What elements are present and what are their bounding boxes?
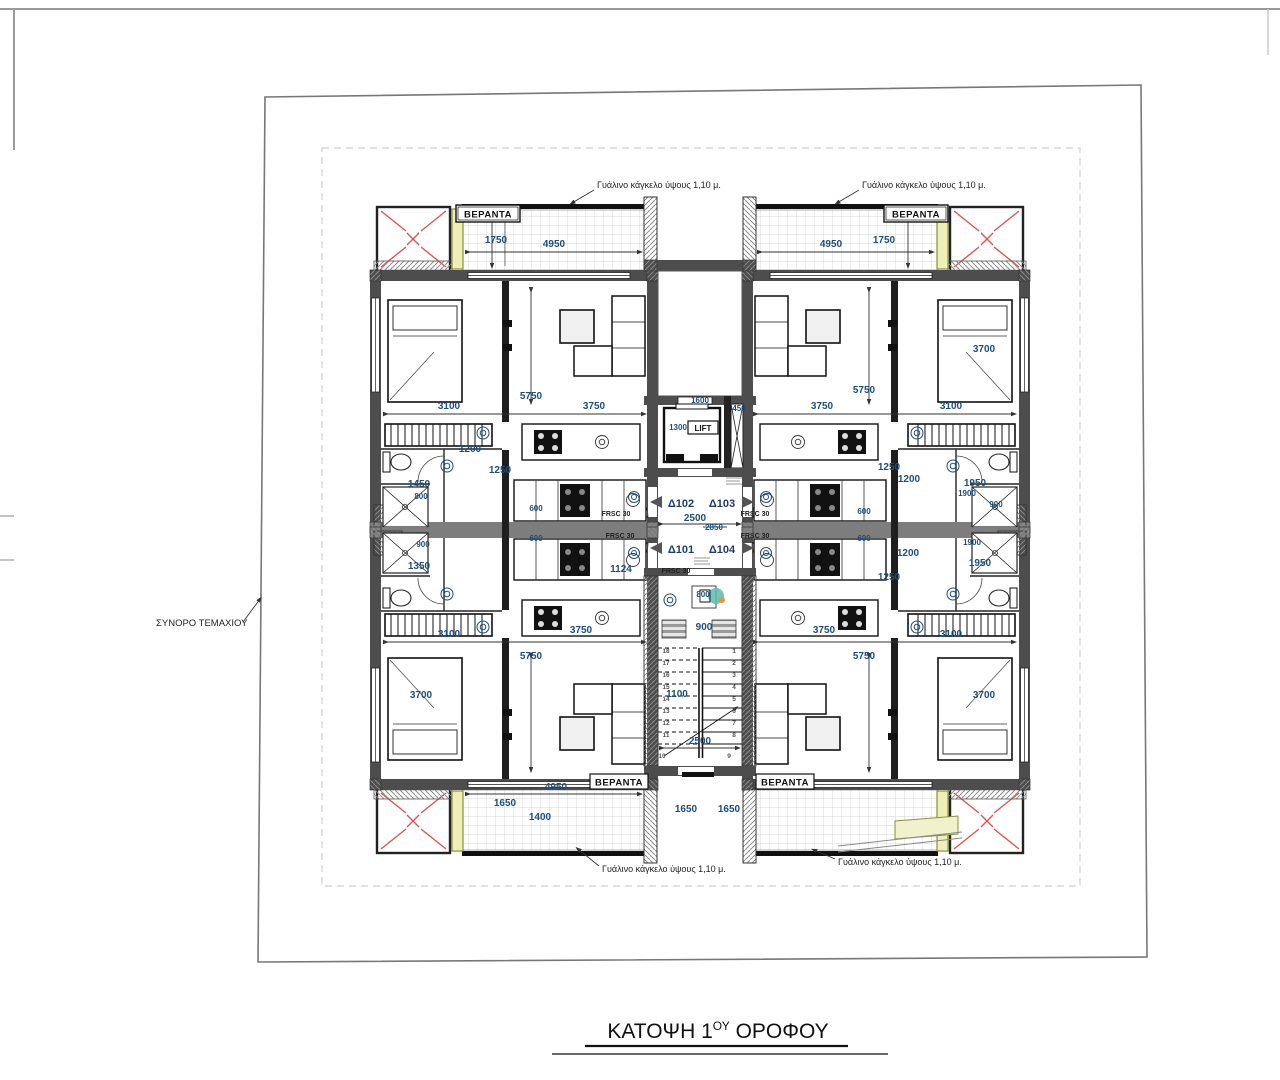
dimension-label: 600 xyxy=(857,534,871,543)
dimension-label: 1900 xyxy=(958,489,976,498)
light-well xyxy=(658,271,742,396)
dimension-label: 1 xyxy=(732,648,736,655)
dimension-label: 800 xyxy=(414,492,428,501)
railing-note: Γυάλινο κάγκελο ύψους 1,10 μ. xyxy=(862,180,986,190)
apartment-label: Δ101 xyxy=(668,544,694,556)
dimension-label: 3750 xyxy=(811,401,834,412)
title-sup: ΟΥ xyxy=(713,1019,730,1033)
dimension-label: 4950 xyxy=(543,239,566,250)
boundary-label: ΣΥΝΟΡΟ ΤΕΜΑΧΙΟΥ xyxy=(156,618,248,629)
threshold-mat xyxy=(712,620,736,638)
dimension-label: 8 xyxy=(732,732,736,739)
dimension-label: 1900 xyxy=(963,538,981,547)
dimension-label: 1350 xyxy=(408,561,431,572)
dimension-label: 900 xyxy=(696,622,713,633)
dimension-label: 14 xyxy=(662,696,670,703)
boundary-note: ΣΥΝΟΡΟ ΤΕΜΑΧΙΟΥ xyxy=(156,599,260,629)
threshold-mat xyxy=(662,620,686,638)
dimension-label: 2500 xyxy=(684,513,707,524)
lift-text: LIFT xyxy=(695,424,712,433)
title-rest: ΟΡΟΦΟΥ xyxy=(730,1020,829,1043)
dimension-label: FRSC 30 xyxy=(602,511,631,518)
railing-note: Γυάλινο κάγκελο ύψους 1,10 μ. xyxy=(602,864,726,874)
dimension-label: 1300 xyxy=(669,423,687,432)
apartment-label: Δ104 xyxy=(709,544,736,556)
dimension-label: 1200 xyxy=(459,444,482,455)
dimension-label: 16 xyxy=(662,672,670,679)
dimension-label: 10 xyxy=(658,753,666,760)
title-main: ΚΑΤΟΨΗ 1 xyxy=(607,1020,712,1043)
dimension-label: 18 xyxy=(662,648,670,655)
dimension-label: FRSC 30 xyxy=(662,568,691,575)
dimension-label: FRSC 30 xyxy=(741,511,770,518)
entrance-door xyxy=(682,772,714,777)
dimension-label: 3700 xyxy=(410,690,433,701)
dimension-label: 6 xyxy=(732,708,736,715)
veranda-label: ΒΕΡΑΝΤΑ xyxy=(464,210,512,221)
dimension-label: 1250 xyxy=(878,462,901,473)
dimension-label: 600 xyxy=(529,534,543,543)
dimension-label: 4 xyxy=(732,684,736,691)
dimension-label: 4950 xyxy=(820,239,843,250)
dimension-label: 450 xyxy=(732,404,746,413)
dimension-label: 1250 xyxy=(878,572,901,583)
dimension-label: 2850 xyxy=(705,523,723,532)
dimension-label: 1650 xyxy=(675,804,698,815)
dimension-label: 3750 xyxy=(570,625,593,636)
dimension-label: 5 xyxy=(732,696,736,703)
veranda-label: ΒΕΡΑΝΤΑ xyxy=(761,778,809,789)
dimension-label: 1450 xyxy=(408,479,431,490)
dimension-label: 4950 xyxy=(545,782,568,793)
dimension-label: 1124 xyxy=(610,564,632,575)
dimension-label: 1750 xyxy=(485,235,508,246)
veranda-label: ΒΕΡΑΝΤΑ xyxy=(892,210,940,221)
dimension-label: 3750 xyxy=(583,401,606,412)
dimension-label: FRSC 30 xyxy=(741,533,770,540)
dimension-label: 3700 xyxy=(973,690,996,701)
dimension-label: 1650 xyxy=(718,804,741,815)
drawing-title: ΚΑΤΟΨΗ 1ΟΥ ΟΡΟΦΟΥ xyxy=(552,1019,888,1054)
apartment-label: Δ103 xyxy=(709,498,735,510)
dimension-label: 3700 xyxy=(973,344,996,355)
floor-plan-page: Δ102 Δ103 Δ101 Δ104 LIFT ΒΕΡΑΝΤΑ ΒΕΡΑΝΤΑ… xyxy=(0,0,1280,1080)
dimension-label: 900 xyxy=(416,540,430,549)
dimension-label: 11 xyxy=(663,732,670,739)
dimension-label: FRSC 30 xyxy=(606,533,635,540)
apartment-upper-right xyxy=(742,197,1030,533)
dimension-label: 1400 xyxy=(529,812,552,823)
duct-shaft xyxy=(731,404,743,468)
dimension-label: 12 xyxy=(662,720,670,727)
dimension-label: 1200 xyxy=(897,548,920,559)
dimension-label: 3 xyxy=(732,672,736,679)
dimension-label: 2 xyxy=(732,660,736,667)
lift-label: LIFT xyxy=(688,421,718,434)
dimension-label: 3750 xyxy=(813,625,836,636)
dimension-label: 1650 xyxy=(494,798,517,809)
floor-plan-drawing: Δ102 Δ103 Δ101 Δ104 LIFT ΒΕΡΑΝΤΑ ΒΕΡΑΝΤΑ… xyxy=(0,0,1280,1080)
dimension-label: 3100 xyxy=(940,401,963,412)
dimension-label: 15 xyxy=(662,684,670,691)
dimension-label: 17 xyxy=(662,660,670,667)
railing-note: Γυάλινο κάγκελο ύψους 1,10 μ. xyxy=(597,180,721,190)
apartment-label: Δ102 xyxy=(668,498,694,510)
dimension-label: 1600 xyxy=(691,396,709,405)
dimension-label: 2500 xyxy=(689,736,712,747)
dimension-label: 800 xyxy=(696,590,710,599)
dimension-label: 5750 xyxy=(520,651,543,662)
dimension-label: 5750 xyxy=(520,391,543,402)
dimension-label: 3100 xyxy=(438,629,461,640)
dimension-label: 7 xyxy=(732,720,736,727)
dimension-label: 1200 xyxy=(898,474,921,485)
dimension-label: 5750 xyxy=(853,385,876,396)
dimension-label: 1250 xyxy=(489,465,512,476)
apartment-doors: Δ102 Δ103 Δ101 Δ104 xyxy=(650,496,754,556)
veranda-label: ΒΕΡΑΝΤΑ xyxy=(595,778,643,789)
dimension-label: 3100 xyxy=(438,401,461,412)
dimension-label: 1750 xyxy=(873,235,896,246)
dimension-label: 1950 xyxy=(969,558,992,569)
dimension-label: 600 xyxy=(857,507,871,516)
svg-text:ΚΑΤΟΨΗ 1ΟΥ ΟΡΟΦΟΥ: ΚΑΤΟΨΗ 1ΟΥ ΟΡΟΦΟΥ xyxy=(607,1019,828,1043)
dimension-label: 1950 xyxy=(964,478,987,489)
dimension-label: 3100 xyxy=(940,629,963,640)
dimension-label: 5750 xyxy=(853,651,876,662)
dimension-label: 13 xyxy=(662,708,670,715)
dimension-label: 900 xyxy=(989,500,1003,509)
railing-note: Γυάλινο κάγκελο ύψους 1,10 μ. xyxy=(838,857,962,867)
dimension-label: 9 xyxy=(727,753,731,760)
dimension-label: 600 xyxy=(529,504,543,513)
